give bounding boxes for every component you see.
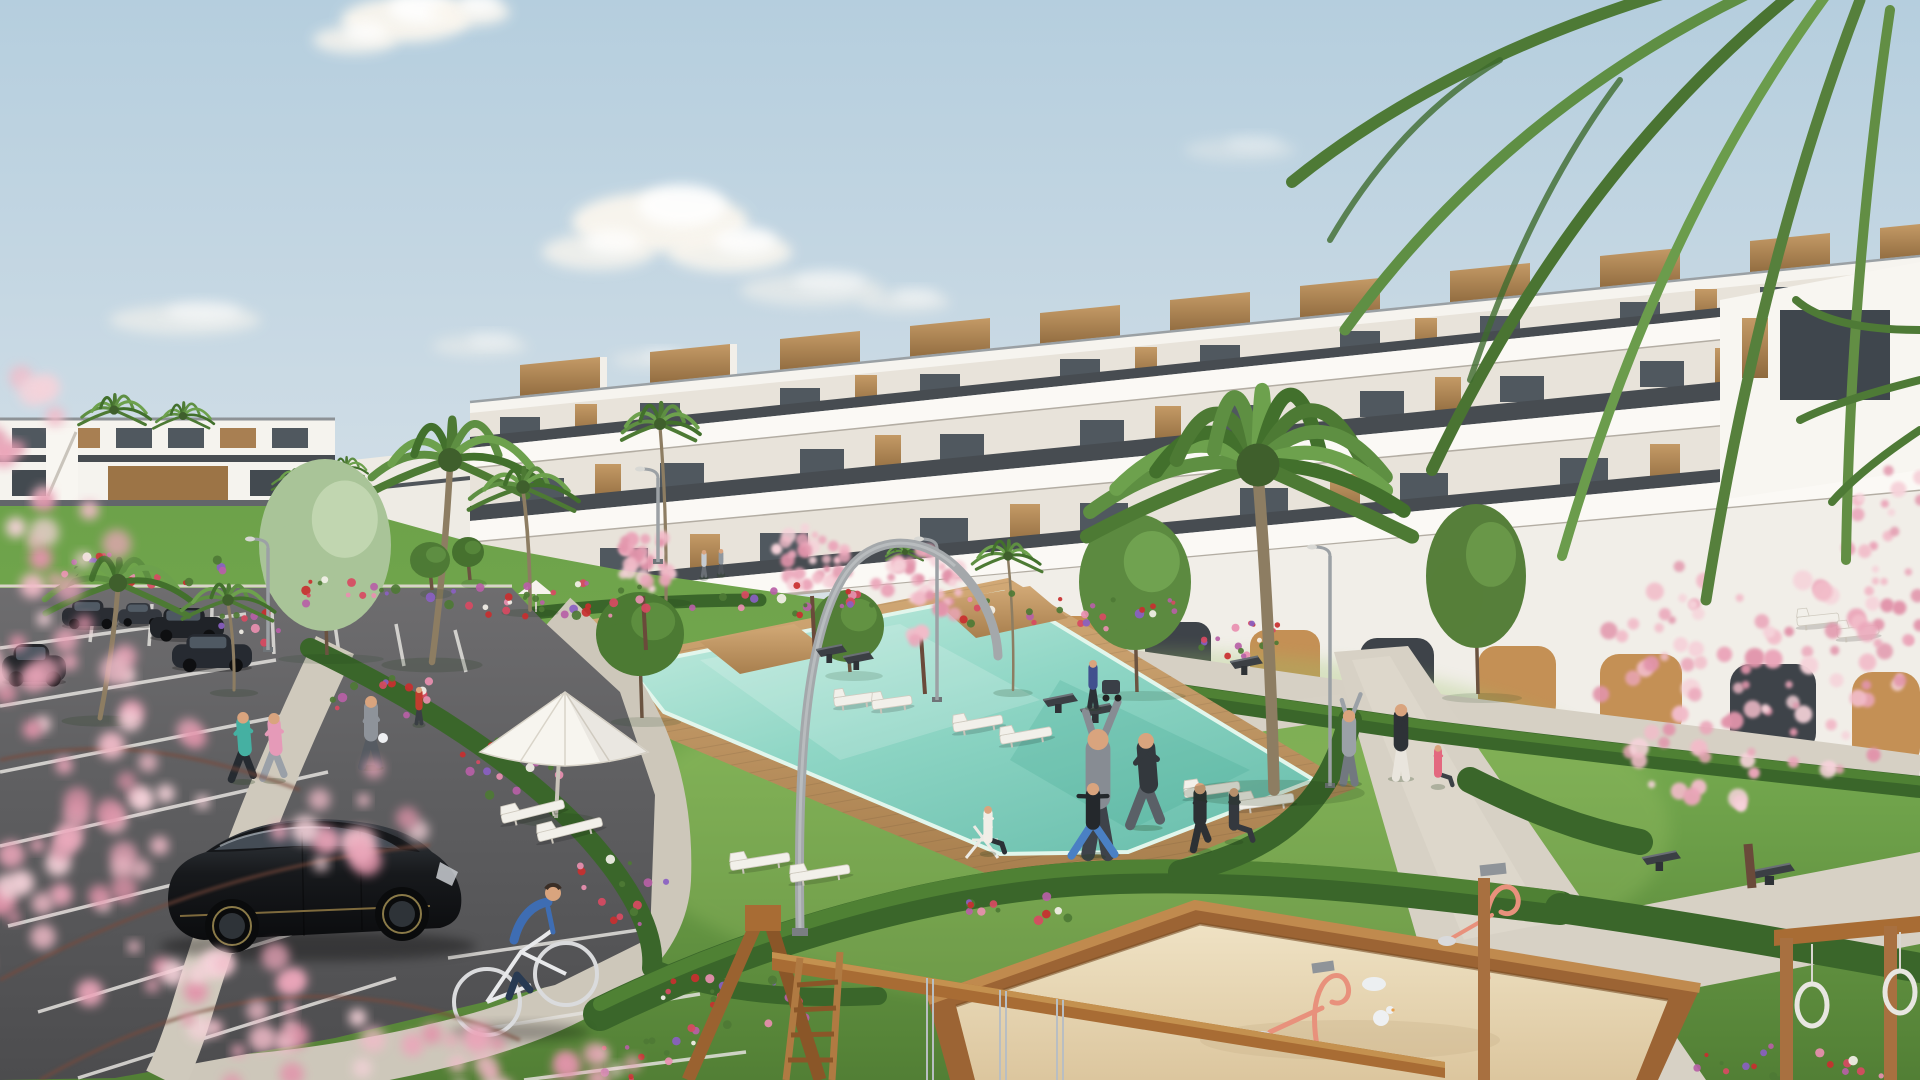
residential-complex-render (0, 0, 1920, 1080)
render-scene: Residential complex exterior visualizati… (0, 0, 1920, 1080)
